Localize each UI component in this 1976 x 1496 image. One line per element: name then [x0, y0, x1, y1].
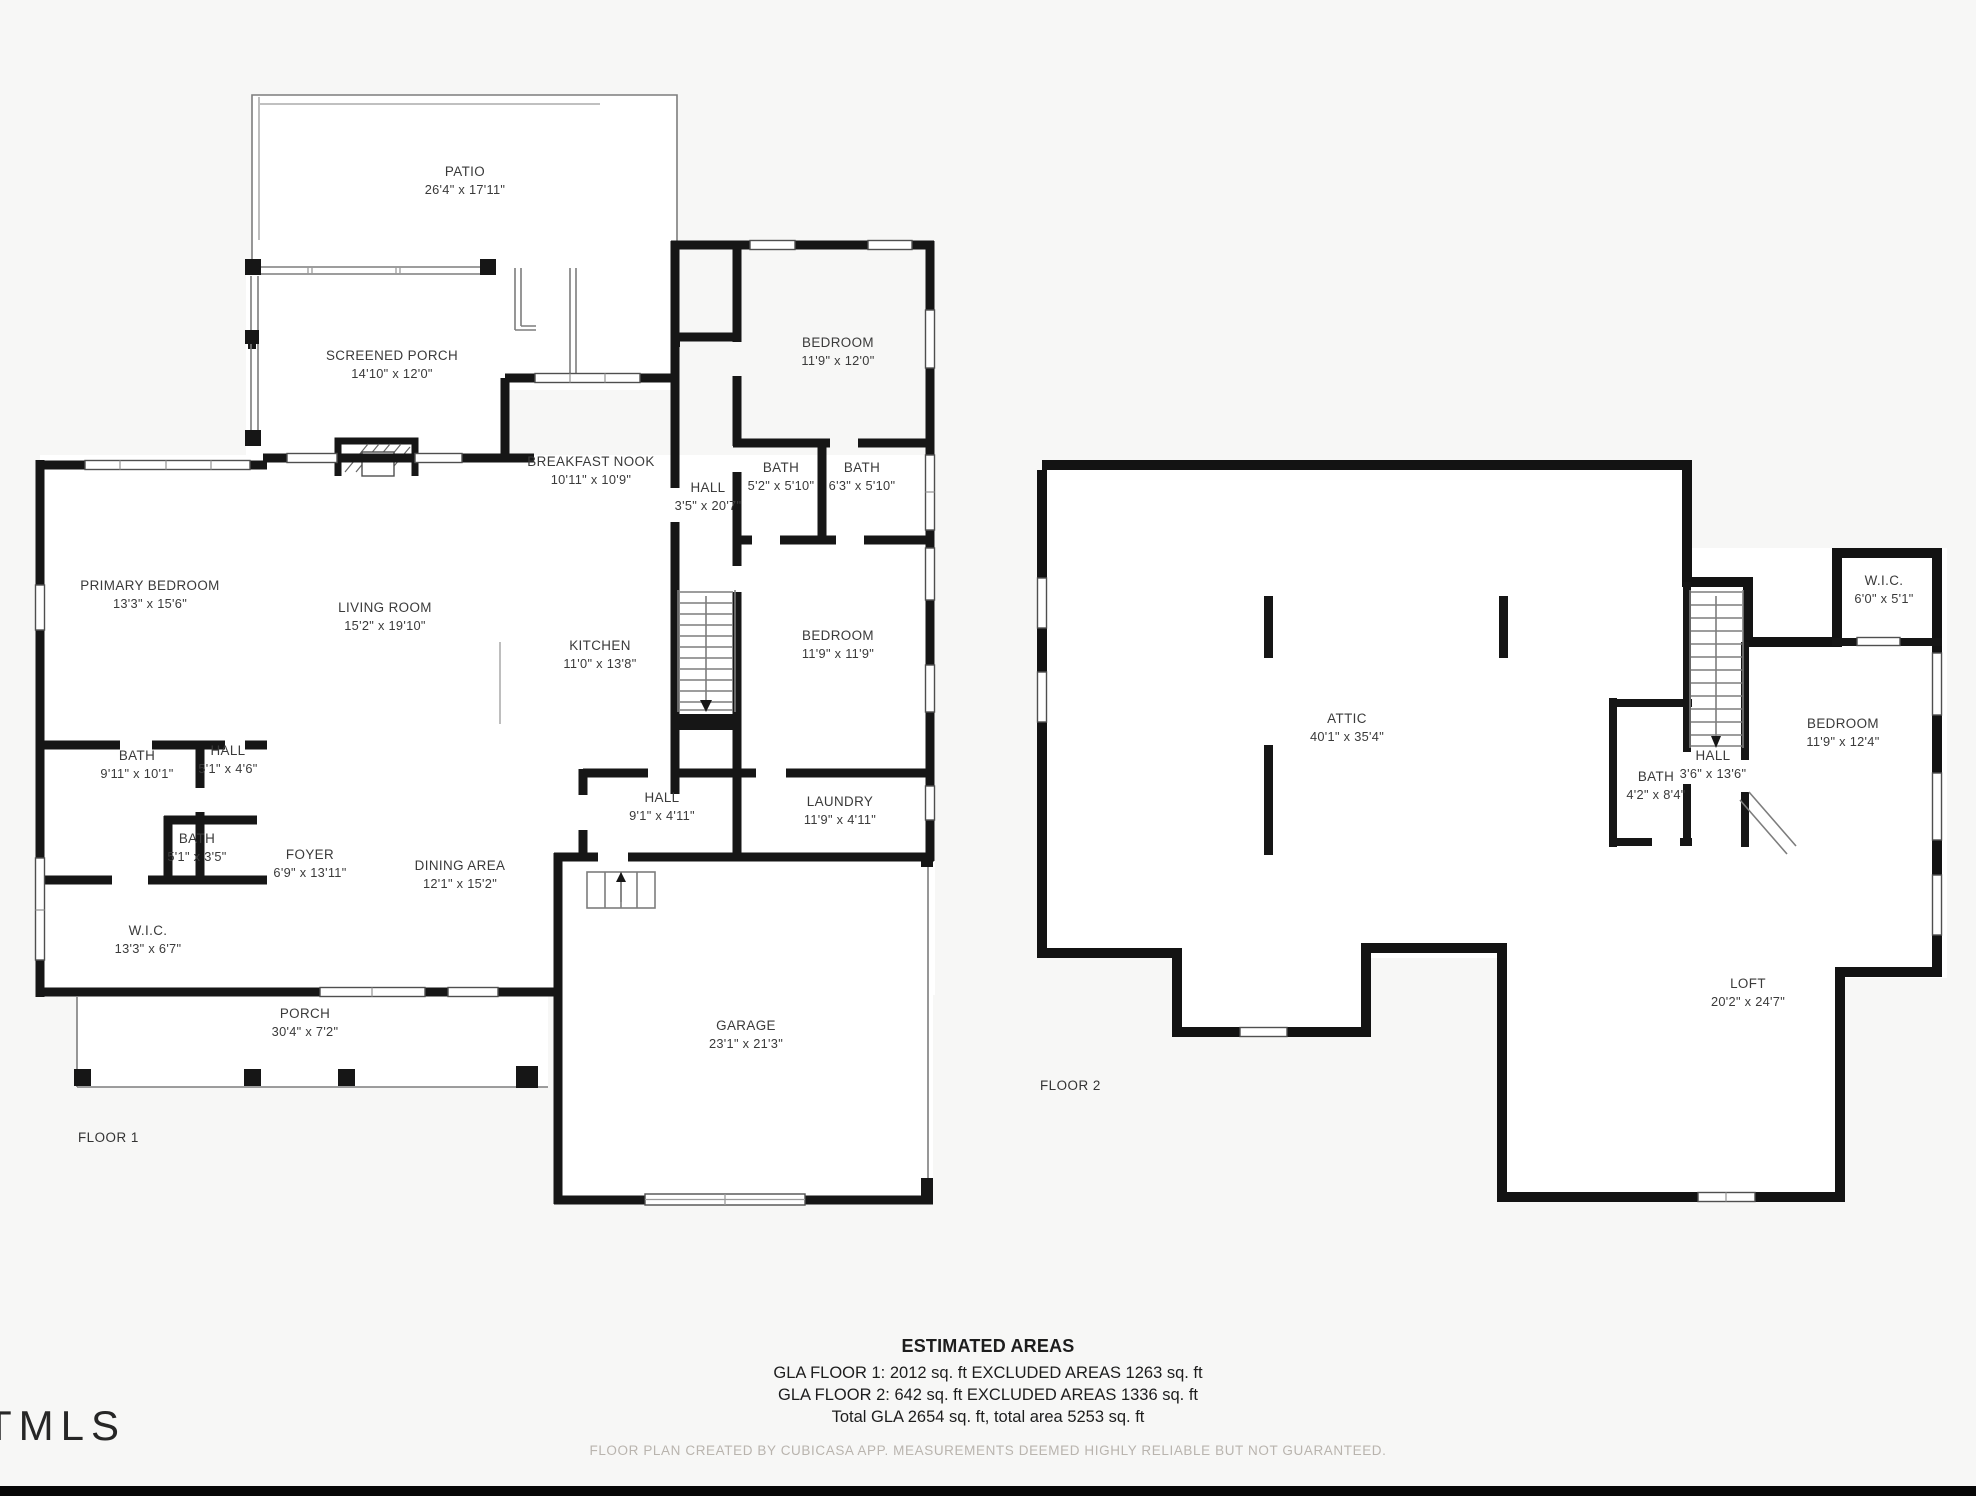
room-label: KITCHEN [569, 638, 631, 653]
room-dims: 13'3" x 15'6" [113, 596, 187, 611]
floor2-floor-fill [1042, 465, 1947, 1202]
room-dims: 5'2" x 5'10" [748, 478, 815, 493]
room-label: HALL [210, 743, 245, 758]
room-label: BATH [763, 460, 799, 475]
room-label: LAUNDRY [807, 794, 874, 809]
estimated-areas-title: ESTIMATED AREAS [0, 1336, 1976, 1357]
room-dims: 4'2" x 8'4" [1626, 787, 1685, 802]
room-label: BATH [844, 460, 880, 475]
floor-plan-svg: PATIO 26'4" x 17'11" SCREENED PORCH 14'1… [0, 0, 1976, 1496]
room-dims: 11'9" x 12'4" [1806, 734, 1879, 749]
room-dims: 15'2" x 19'10" [344, 618, 426, 633]
room-label: GARAGE [716, 1018, 776, 1033]
room-label: W.I.C. [129, 923, 168, 938]
room-label: LIVING ROOM [338, 600, 432, 615]
room-dims: 30'4" x 7'2" [272, 1024, 339, 1039]
room-dims: 9'11" x 10'1" [100, 766, 173, 781]
room-dims: 23'1" x 21'3" [709, 1036, 783, 1051]
room-label: PRIMARY BEDROOM [80, 578, 219, 593]
bottom-bar [0, 1486, 1976, 1496]
room-label: HALL [644, 790, 679, 805]
room-label: BEDROOM [1807, 716, 1879, 731]
room-label: LOFT [1730, 976, 1766, 991]
room-dims: 10'11" x 10'9" [551, 472, 632, 487]
room-dims: 6'9" x 13'11" [273, 865, 346, 880]
room-label: DINING AREA [415, 858, 506, 873]
room-label: BEDROOM [802, 628, 874, 643]
room-dims: 11'9" x 11'9" [802, 646, 874, 661]
room-label: BATH [119, 748, 155, 763]
room-label: HALL [1695, 748, 1730, 763]
estimated-areas-block: ESTIMATED AREAS GLA FLOOR 1: 2012 sq. ft… [0, 1336, 1976, 1428]
room-label: PORCH [280, 1006, 330, 1021]
room-dims: 11'0" x 13'8" [563, 656, 636, 671]
room-label: BATH [1638, 769, 1674, 784]
floor-plan-page: PATIO 26'4" x 17'11" SCREENED PORCH 14'1… [0, 0, 1976, 1496]
room-label: ATTIC [1327, 711, 1367, 726]
room-dims: 6'3" x 5'10" [829, 478, 896, 493]
gla-floor2-line: GLA FLOOR 2: 642 sq. ft EXCLUDED AREAS 1… [0, 1384, 1976, 1406]
room-dims: 3'5" x 20'7" [675, 498, 742, 513]
room-dims: 20'2" x 24'7" [1711, 994, 1785, 1009]
floor1-label: FLOOR 1 [78, 1130, 139, 1145]
room-dims: 40'1" x 35'4" [1310, 729, 1384, 744]
room-label: HALL [690, 480, 725, 495]
disclaimer-text: FLOOR PLAN CREATED BY CUBICASA APP. MEAS… [0, 1443, 1976, 1458]
gla-floor1-line: GLA FLOOR 1: 2012 sq. ft EXCLUDED AREAS … [0, 1362, 1976, 1384]
room-label: BEDROOM [802, 335, 874, 350]
room-label: BREAKFAST NOOK [527, 454, 654, 469]
room-dims: 9'1" x 4'11" [629, 808, 695, 823]
room-dims: 5'1" x 4'6" [198, 761, 257, 776]
total-gla-line: Total GLA 2654 sq. ft, total area 5253 s… [0, 1406, 1976, 1428]
room-dims: 14'10" x 12'0" [351, 366, 433, 381]
room-dims: 5'1" x 3'5" [167, 849, 226, 864]
room-dims: 11'9" x 12'0" [801, 353, 874, 368]
room-dims: 12'1" x 15'2" [423, 876, 497, 891]
room-label: SCREENED PORCH [326, 348, 458, 363]
room-label: PATIO [445, 164, 485, 179]
room-label: FOYER [286, 847, 334, 862]
room-dims: 3'6" x 13'6" [1680, 766, 1747, 781]
room-dims: 6'0" x 5'1" [1854, 591, 1913, 606]
floor1-plan: PATIO 26'4" x 17'11" SCREENED PORCH 14'1… [36, 95, 936, 1205]
room-dims: 26'4" x 17'11" [425, 182, 506, 197]
tmls-logo: TMLS [0, 1402, 126, 1450]
floor2-plan: ATTIC 40'1" x 35'4" W.I.C. 6'0" x 5'1" B… [1038, 460, 1948, 1202]
room-label: BATH [179, 831, 215, 846]
floor2-label: FLOOR 2 [1040, 1078, 1101, 1093]
room-dims: 11'9" x 4'11" [804, 812, 876, 827]
room-label: W.I.C. [1865, 573, 1904, 588]
room-dims: 13'3" x 6'7" [115, 941, 182, 956]
